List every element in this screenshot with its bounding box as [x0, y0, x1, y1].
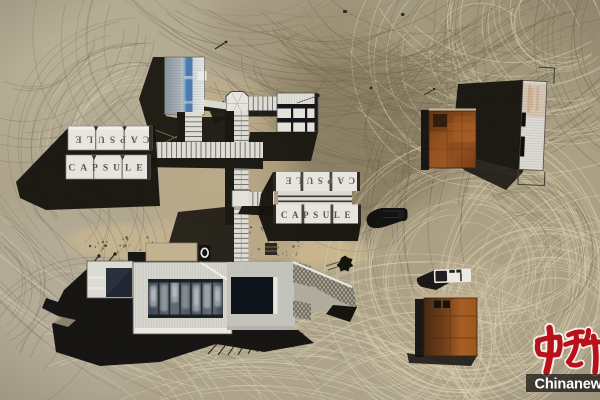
- svg-text:CAPSULE: CAPSULE: [281, 210, 355, 220]
- svg-text:CAPSULE: CAPSULE: [281, 176, 355, 186]
- svg-text:CAPSULE: CAPSULE: [70, 134, 149, 144]
- svg-text:Chinanews: Chinanews: [535, 376, 600, 392]
- svg-text:CAPSULE: CAPSULE: [68, 164, 147, 174]
